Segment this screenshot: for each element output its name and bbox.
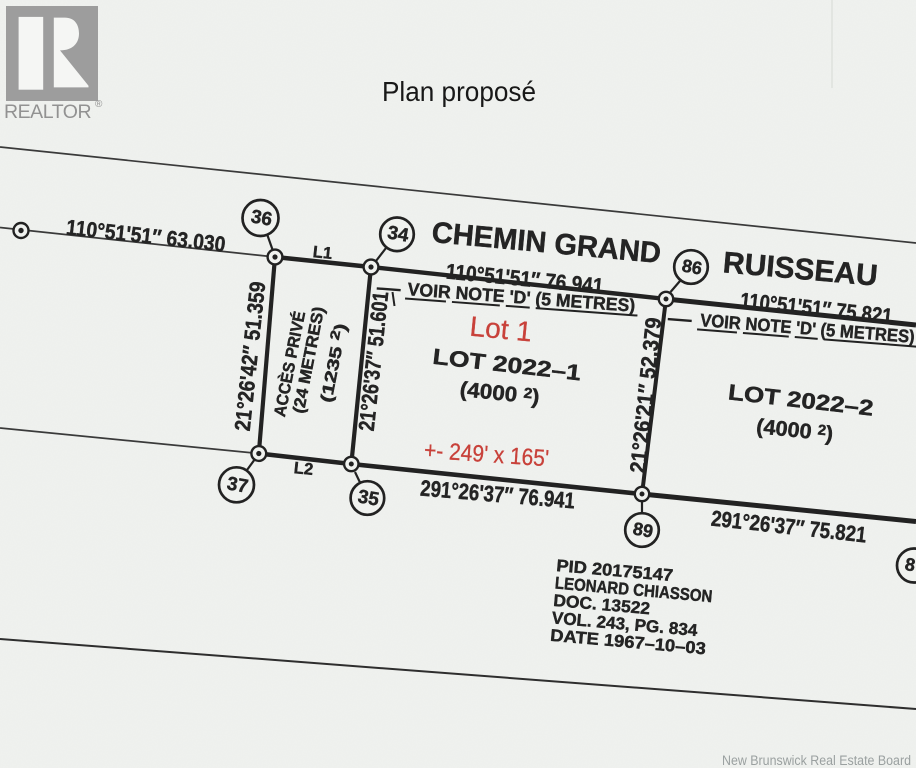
- svg-text:Lot 1: Lot 1: [468, 311, 533, 348]
- svg-text:L1: L1: [312, 243, 333, 263]
- svg-text:L2: L2: [293, 459, 314, 479]
- svg-text:REALTOR: REALTOR: [4, 101, 92, 123]
- svg-text:34: 34: [386, 222, 411, 246]
- svg-text:37: 37: [225, 473, 249, 497]
- svg-text:®: ®: [95, 99, 103, 110]
- svg-text:87: 87: [903, 554, 916, 577]
- svg-text:Plan proposé: Plan proposé: [382, 76, 536, 107]
- svg-text:89: 89: [631, 519, 654, 542]
- svg-text:36: 36: [249, 206, 273, 230]
- svg-text:86: 86: [680, 256, 703, 279]
- svg-text:New Brunswick Real Estate Boar: New Brunswick Real Estate Board: [722, 753, 911, 768]
- svg-text:35: 35: [356, 486, 381, 510]
